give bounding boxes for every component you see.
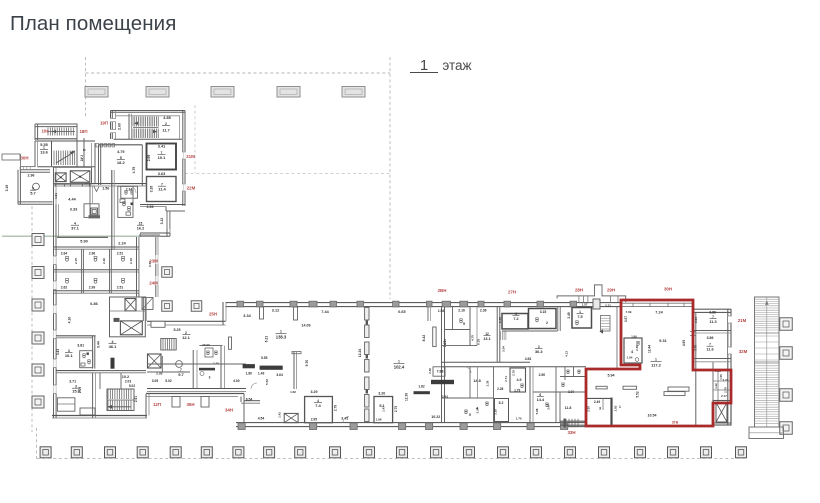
svg-text:1: 1 [655,358,657,362]
svg-text:3.14: 3.14 [476,407,480,413]
svg-text:30Н: 30Н [20,155,28,160]
svg-text:1.57: 1.57 [582,302,588,306]
svg-text:7.24: 7.24 [655,311,663,315]
svg-text:5.31: 5.31 [659,339,666,343]
svg-text:2.51: 2.51 [117,252,124,256]
svg-text:1.56: 1.56 [102,187,109,191]
svg-text:4.95: 4.95 [682,340,686,346]
svg-text:этаж: этаж [442,58,471,73]
svg-text:2.75: 2.75 [394,406,398,412]
svg-text:2.15: 2.15 [74,258,78,264]
svg-text:12: 12 [485,332,489,336]
svg-text:2.36: 2.36 [486,380,490,386]
svg-text:2.61: 2.61 [134,396,138,402]
svg-text:3.47: 3.47 [547,404,551,410]
svg-text:2.99: 2.99 [89,286,96,290]
svg-text:3.05: 3.05 [152,379,159,383]
svg-text:9.70: 9.70 [305,360,309,367]
svg-text:3.53: 3.53 [147,205,154,209]
svg-text:16.2: 16.2 [137,227,144,231]
svg-text:2.19: 2.19 [129,258,133,264]
svg-text:7: 7 [709,343,711,347]
svg-text:3.12: 3.12 [272,309,279,313]
svg-text:14.09: 14.09 [302,324,311,328]
svg-text:3.41: 3.41 [158,145,165,149]
svg-text:3.86: 3.86 [707,336,714,340]
svg-text:7: 7 [161,183,163,187]
svg-text:1: 1 [43,146,45,150]
svg-text:30Н: 30Н [664,287,672,292]
svg-text:1.69: 1.69 [631,334,637,338]
svg-text:30.90: 30.90 [202,343,210,347]
svg-text:6.65: 6.65 [398,310,405,314]
svg-text:6.21: 6.21 [265,336,269,343]
svg-text:1.47: 1.47 [382,406,386,412]
svg-text:1.58: 1.58 [438,309,444,313]
svg-text:3.26: 3.26 [150,186,154,193]
svg-text:2.96: 2.96 [89,252,96,256]
svg-text:2.79: 2.79 [512,370,516,376]
svg-text:2.82: 2.82 [614,405,618,411]
svg-text:9.7: 9.7 [178,372,184,377]
svg-text:7.09: 7.09 [626,310,632,314]
svg-text:3.12: 3.12 [160,218,164,225]
svg-text:4: 4 [112,340,114,344]
svg-text:2.31: 2.31 [605,303,611,307]
svg-text:3: 3 [75,385,77,389]
svg-text:2.30: 2.30 [498,317,502,323]
svg-text:2.24: 2.24 [118,241,126,245]
svg-text:10.54: 10.54 [648,414,657,418]
svg-text:3.20: 3.20 [378,392,385,396]
svg-text:5.90: 5.90 [80,240,87,244]
svg-text:46.1: 46.1 [109,344,118,349]
svg-text:8.42: 8.42 [422,335,426,342]
svg-text:1: 1 [398,360,400,364]
svg-text:3.15: 3.15 [540,310,547,314]
svg-text:5.02: 5.02 [165,379,172,383]
svg-text:12.44: 12.44 [648,345,652,353]
svg-text:3.43: 3.43 [56,349,60,355]
svg-text:2.71: 2.71 [504,376,508,382]
svg-text:5.02: 5.02 [129,384,135,388]
svg-text:117.2: 117.2 [651,363,662,368]
svg-text:14.4: 14.4 [537,398,545,402]
svg-text:5.7: 5.7 [30,191,36,196]
svg-text:3.81: 3.81 [77,344,84,348]
svg-text:1.70: 1.70 [516,417,522,421]
svg-text:1: 1 [619,405,621,409]
svg-text:9.44: 9.44 [97,341,101,348]
svg-text:10.2: 10.2 [122,375,129,379]
svg-text:5: 5 [120,156,122,160]
svg-text:6.19: 6.19 [477,339,481,345]
svg-text:11.7: 11.7 [162,128,170,133]
svg-text:7: 7 [161,151,163,155]
svg-text:5.98: 5.98 [535,408,539,414]
svg-text:ЗГВ: ЗГВ [672,421,679,425]
svg-text:2.64: 2.64 [694,317,698,323]
svg-text:2.26: 2.26 [102,258,106,264]
svg-text:7.44: 7.44 [321,310,329,314]
svg-text:1.80: 1.80 [246,372,253,376]
svg-text:36.3: 36.3 [535,349,543,354]
svg-text:32М: 32М [739,349,748,354]
svg-text:1.94: 1.94 [627,356,633,360]
svg-text:21М: 21М [186,154,195,159]
svg-text:25Н: 25Н [209,312,217,317]
svg-text:5.94: 5.94 [608,374,615,378]
svg-text:4.9: 4.9 [517,378,522,382]
svg-text:2.95: 2.95 [311,418,318,422]
svg-text:2.36: 2.36 [635,345,639,351]
svg-text:11.6: 11.6 [706,348,713,352]
svg-text:3.29: 3.29 [311,390,318,394]
svg-text:2.50: 2.50 [539,373,546,377]
svg-text:2.79: 2.79 [334,405,338,411]
svg-text:1.86: 1.86 [376,418,382,422]
svg-text:1.42: 1.42 [714,383,718,389]
svg-text:35Н: 35Н [186,402,194,407]
svg-text:3: 3 [599,407,601,411]
svg-text:1.91: 1.91 [54,193,58,199]
svg-text:2: 2 [165,122,167,126]
svg-text:2ВН: 2ВН [438,288,447,293]
svg-text:1: 1 [280,330,282,334]
svg-text:11.3: 11.3 [709,320,716,324]
svg-text:5.52: 5.52 [265,379,269,385]
svg-text:22М: 22М [187,186,196,191]
svg-text:3: 3 [209,376,211,380]
svg-text:10к: 10к [41,129,49,134]
svg-text:27Н: 27Н [508,290,516,295]
svg-text:4.79: 4.79 [117,150,124,154]
svg-text:1: 1 [420,57,428,74]
svg-text:7.45: 7.45 [80,155,84,162]
svg-text:11.8: 11.8 [565,406,572,410]
svg-text:1.82: 1.82 [418,385,424,389]
svg-text:3: 3 [515,312,517,316]
svg-text:2.34: 2.34 [126,187,133,191]
svg-text:3.64: 3.64 [276,373,283,377]
svg-text:12П: 12П [153,402,161,407]
svg-text:37.1: 37.1 [71,226,80,231]
svg-text:21М: 21М [738,318,747,323]
svg-text:2: 2 [546,321,548,325]
svg-text:6.13: 6.13 [443,339,447,345]
svg-text:1: 1 [579,310,581,314]
svg-text:15: 15 [139,222,143,226]
svg-text:2.05: 2.05 [78,387,82,393]
svg-text:2.91: 2.91 [442,395,449,399]
svg-text:4.13: 4.13 [565,351,569,357]
svg-text:2.96: 2.96 [28,174,35,178]
svg-text:29Н: 29Н [607,288,615,293]
svg-text:11.4: 11.4 [158,187,166,192]
svg-text:18П: 18П [79,129,87,134]
svg-text:4.75: 4.75 [132,167,136,174]
svg-text:4.54: 4.54 [258,417,265,421]
svg-text:18.2: 18.2 [117,160,126,165]
svg-text:13.6: 13.6 [40,150,49,155]
svg-text:3.86: 3.86 [709,311,716,315]
svg-text:9: 9 [463,322,465,326]
svg-text:23М: 23М [149,259,158,264]
svg-text:2.49: 2.49 [594,400,600,404]
svg-text:7.4: 7.4 [315,403,321,408]
svg-text:3.57: 3.57 [624,316,628,322]
svg-text:2.64: 2.64 [61,252,68,256]
svg-text:4.10: 4.10 [68,317,72,324]
svg-text:3: 3 [538,345,540,349]
svg-text:3.63: 3.63 [158,172,165,176]
svg-text:9: 9 [32,187,34,191]
svg-text:3.33: 3.33 [70,208,77,212]
svg-text:3: 3 [68,349,70,353]
svg-text:34Н: 34Н [225,408,233,413]
svg-text:7: 7 [180,368,182,372]
svg-text:6.86: 6.86 [90,302,97,306]
svg-text:4.53: 4.53 [525,357,532,361]
svg-text:2.95: 2.95 [147,155,151,162]
svg-text:2.17: 2.17 [721,394,727,398]
svg-text:28Н: 28Н [575,288,583,293]
svg-text:1.42: 1.42 [278,412,282,418]
svg-text:138.3: 138.3 [276,335,287,340]
svg-text:4.00: 4.00 [233,379,240,383]
svg-text:12.1: 12.1 [182,335,191,340]
svg-text:12.24: 12.24 [358,349,362,358]
svg-text:4.85: 4.85 [163,116,170,120]
svg-text:5: 5 [469,413,471,417]
svg-text:2.49: 2.49 [567,312,571,318]
svg-text:5.52: 5.52 [636,391,640,397]
svg-text:2.28: 2.28 [497,387,503,391]
svg-text:10.22: 10.22 [431,415,440,419]
svg-text:4: 4 [74,222,76,226]
svg-text:12.39: 12.39 [405,393,409,401]
svg-text:2.36: 2.36 [480,309,487,313]
svg-text:19П: 19П [100,121,108,126]
svg-text:10.1: 10.1 [158,155,167,160]
svg-text:5.2: 5.2 [499,401,504,405]
svg-text:6.54: 6.54 [246,398,253,402]
svg-text:3.18: 3.18 [494,409,498,415]
svg-text:7.2: 7.2 [513,317,518,321]
svg-text:2.16: 2.16 [458,309,465,313]
svg-text:5.25: 5.25 [174,328,181,332]
svg-text:2.36: 2.36 [428,368,432,374]
svg-text:13.1: 13.1 [483,337,490,341]
svg-text:7.5: 7.5 [577,315,582,319]
svg-text:3.19: 3.19 [5,185,9,192]
svg-text:1.62: 1.62 [290,390,296,394]
svg-text:2: 2 [185,331,187,335]
svg-text:2.60: 2.60 [118,123,122,130]
svg-text:1.49: 1.49 [258,372,265,376]
svg-text:1.20: 1.20 [213,362,219,366]
svg-text:2.62: 2.62 [61,286,68,290]
svg-text:3.54: 3.54 [502,346,506,352]
svg-text:24М: 24М [149,281,158,286]
svg-text:4.75: 4.75 [471,335,475,341]
svg-text:2.03: 2.03 [125,380,131,384]
svg-text:2: 2 [82,149,86,151]
svg-text:4: 4 [631,350,634,354]
svg-text:14.8: 14.8 [473,379,480,383]
svg-text:16.1: 16.1 [65,353,74,358]
svg-text:102.4: 102.4 [394,365,405,370]
svg-text:3.71: 3.71 [69,380,76,384]
svg-text:6: 6 [539,393,541,397]
svg-text:7.88: 7.88 [437,370,444,374]
svg-text:4.44: 4.44 [68,198,76,202]
svg-text:7: 7 [712,315,714,319]
svg-text:4: 4 [317,399,319,403]
svg-text:33Н: 33Н [567,430,575,435]
svg-text:5.55: 5.55 [261,356,268,360]
svg-text:3.34: 3.34 [243,314,251,318]
svg-text:2.51: 2.51 [117,286,124,290]
